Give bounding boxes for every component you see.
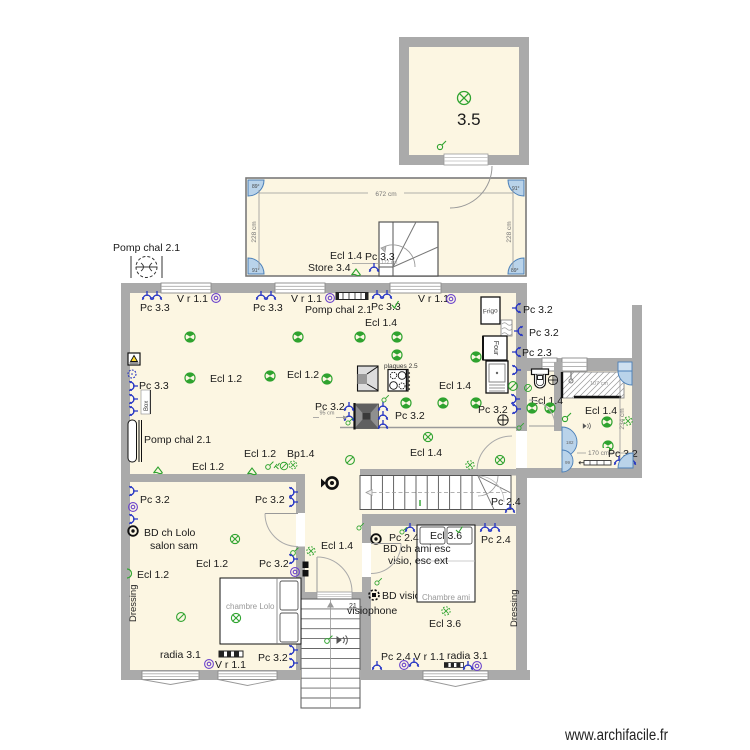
svg-text:Pc 3.2: Pc 3.2 <box>529 327 559 339</box>
svg-text:BD visio: BD visio <box>382 590 421 602</box>
svg-text:Ecl 1.4: Ecl 1.4 <box>410 447 442 459</box>
svg-text:89°: 89° <box>252 184 260 190</box>
svg-text:visiophone: visiophone <box>347 605 397 617</box>
svg-text:672 cm: 672 cm <box>375 191 396 198</box>
svg-text:Pc 2.4: Pc 2.4 <box>491 496 521 508</box>
svg-text:Store 3.4: Store 3.4 <box>308 262 351 274</box>
svg-text:Pc 3.3: Pc 3.3 <box>365 251 395 263</box>
svg-text:BD ch Lolo: BD ch Lolo <box>144 527 196 539</box>
svg-text:Pc 3.3: Pc 3.3 <box>371 301 401 313</box>
svg-text:Dressing: Dressing <box>128 585 139 623</box>
svg-text:V r 1.1: V r 1.1 <box>418 293 449 305</box>
svg-text:Pomp chal 2.1: Pomp chal 2.1 <box>144 434 211 446</box>
svg-text:89°: 89° <box>511 268 519 274</box>
svg-text:V r 1.1: V r 1.1 <box>215 659 246 671</box>
svg-text:107 cm: 107 cm <box>590 381 608 387</box>
svg-text:Pc 3.2: Pc 3.2 <box>259 558 289 570</box>
svg-text:228 cm: 228 cm <box>251 221 258 242</box>
svg-text:3.5: 3.5 <box>457 110 481 129</box>
svg-text:228 cm: 228 cm <box>506 221 513 242</box>
svg-text:Pc 3.2: Pc 3.2 <box>140 494 170 506</box>
svg-text:Dressing: Dressing <box>509 590 520 628</box>
svg-text:Four: Four <box>492 341 499 356</box>
svg-text:234 cm: 234 cm <box>619 408 626 429</box>
svg-text:Ecl 1.4: Ecl 1.4 <box>365 317 397 329</box>
svg-text:Pc 2.3: Pc 2.3 <box>522 347 552 359</box>
svg-text:Pc 3.2: Pc 3.2 <box>478 404 508 416</box>
svg-text:www.archifacile.fr: www.archifacile.fr <box>564 727 668 744</box>
svg-text:99: 99 <box>565 460 571 465</box>
svg-text:Box: Box <box>144 401 150 411</box>
svg-text:Ecl 1.2: Ecl 1.2 <box>244 448 276 460</box>
svg-text:Ecl 1.4: Ecl 1.4 <box>321 540 353 552</box>
svg-text:Pc 3.3: Pc 3.3 <box>140 302 170 314</box>
svg-text:Ecl 3.6: Ecl 3.6 <box>429 618 461 630</box>
svg-text:Ecl 1.4: Ecl 1.4 <box>330 250 362 262</box>
svg-text:Pc 2.4 V r 1.1: Pc 2.4 V r 1.1 <box>381 651 445 663</box>
svg-text:Pomp chal 2.1: Pomp chal 2.1 <box>305 304 372 316</box>
svg-text:Ecl 1.2: Ecl 1.2 <box>196 558 228 570</box>
svg-text:Ecl 1.2: Ecl 1.2 <box>192 461 224 473</box>
svg-text:Ecl 1.4: Ecl 1.4 <box>585 405 617 417</box>
svg-text:radia 3.1: radia 3.1 <box>447 650 488 662</box>
svg-text:Pc 3.3: Pc 3.3 <box>253 302 283 314</box>
svg-text:V r 1.1: V r 1.1 <box>177 293 208 305</box>
svg-text:chambre Lolo: chambre Lolo <box>226 602 275 611</box>
svg-text:Pc 3.2: Pc 3.2 <box>258 652 288 664</box>
svg-text:visio, esc ext: visio, esc ext <box>388 555 448 567</box>
svg-text:182: 182 <box>566 440 574 445</box>
svg-text:Pc 3.2: Pc 3.2 <box>395 410 425 422</box>
svg-text:Pc 3.2: Pc 3.2 <box>523 304 553 316</box>
svg-text:Bp1.4: Bp1.4 <box>287 448 315 460</box>
svg-text:salon sam: salon sam <box>150 540 198 552</box>
svg-text:Pc 3.2: Pc 3.2 <box>255 494 285 506</box>
svg-text:radia 3.1: radia 3.1 <box>160 649 201 661</box>
svg-text:Ecl 1.2: Ecl 1.2 <box>210 373 242 385</box>
svg-text:Chambre ami: Chambre ami <box>422 593 470 602</box>
svg-text:95 cm: 95 cm <box>320 411 335 417</box>
svg-text:Ecl 1.4: Ecl 1.4 <box>439 380 471 392</box>
svg-text:Pomp chal 2.1: Pomp chal 2.1 <box>113 242 180 254</box>
svg-text:BD ch ami esc: BD ch ami esc <box>383 543 451 555</box>
svg-text:170 cm: 170 cm <box>588 450 609 457</box>
svg-text:Pc 2.4: Pc 2.4 <box>481 534 511 546</box>
svg-text:91°: 91° <box>252 268 260 274</box>
svg-text:Ecl 1.2: Ecl 1.2 <box>287 369 319 381</box>
svg-text:Ecl 1.2: Ecl 1.2 <box>137 569 169 581</box>
